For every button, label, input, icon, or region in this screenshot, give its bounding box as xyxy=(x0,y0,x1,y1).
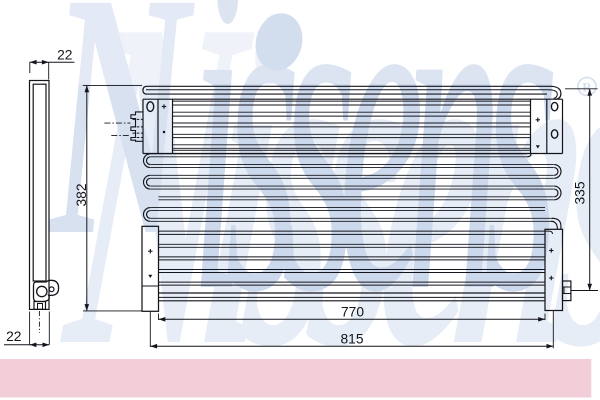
svg-text:382: 382 xyxy=(74,183,89,206)
svg-text:335: 335 xyxy=(573,181,588,204)
svg-text:22: 22 xyxy=(57,47,72,62)
svg-text:770: 770 xyxy=(341,305,364,320)
svg-text:815: 815 xyxy=(340,332,363,347)
svg-text:22: 22 xyxy=(6,329,21,344)
